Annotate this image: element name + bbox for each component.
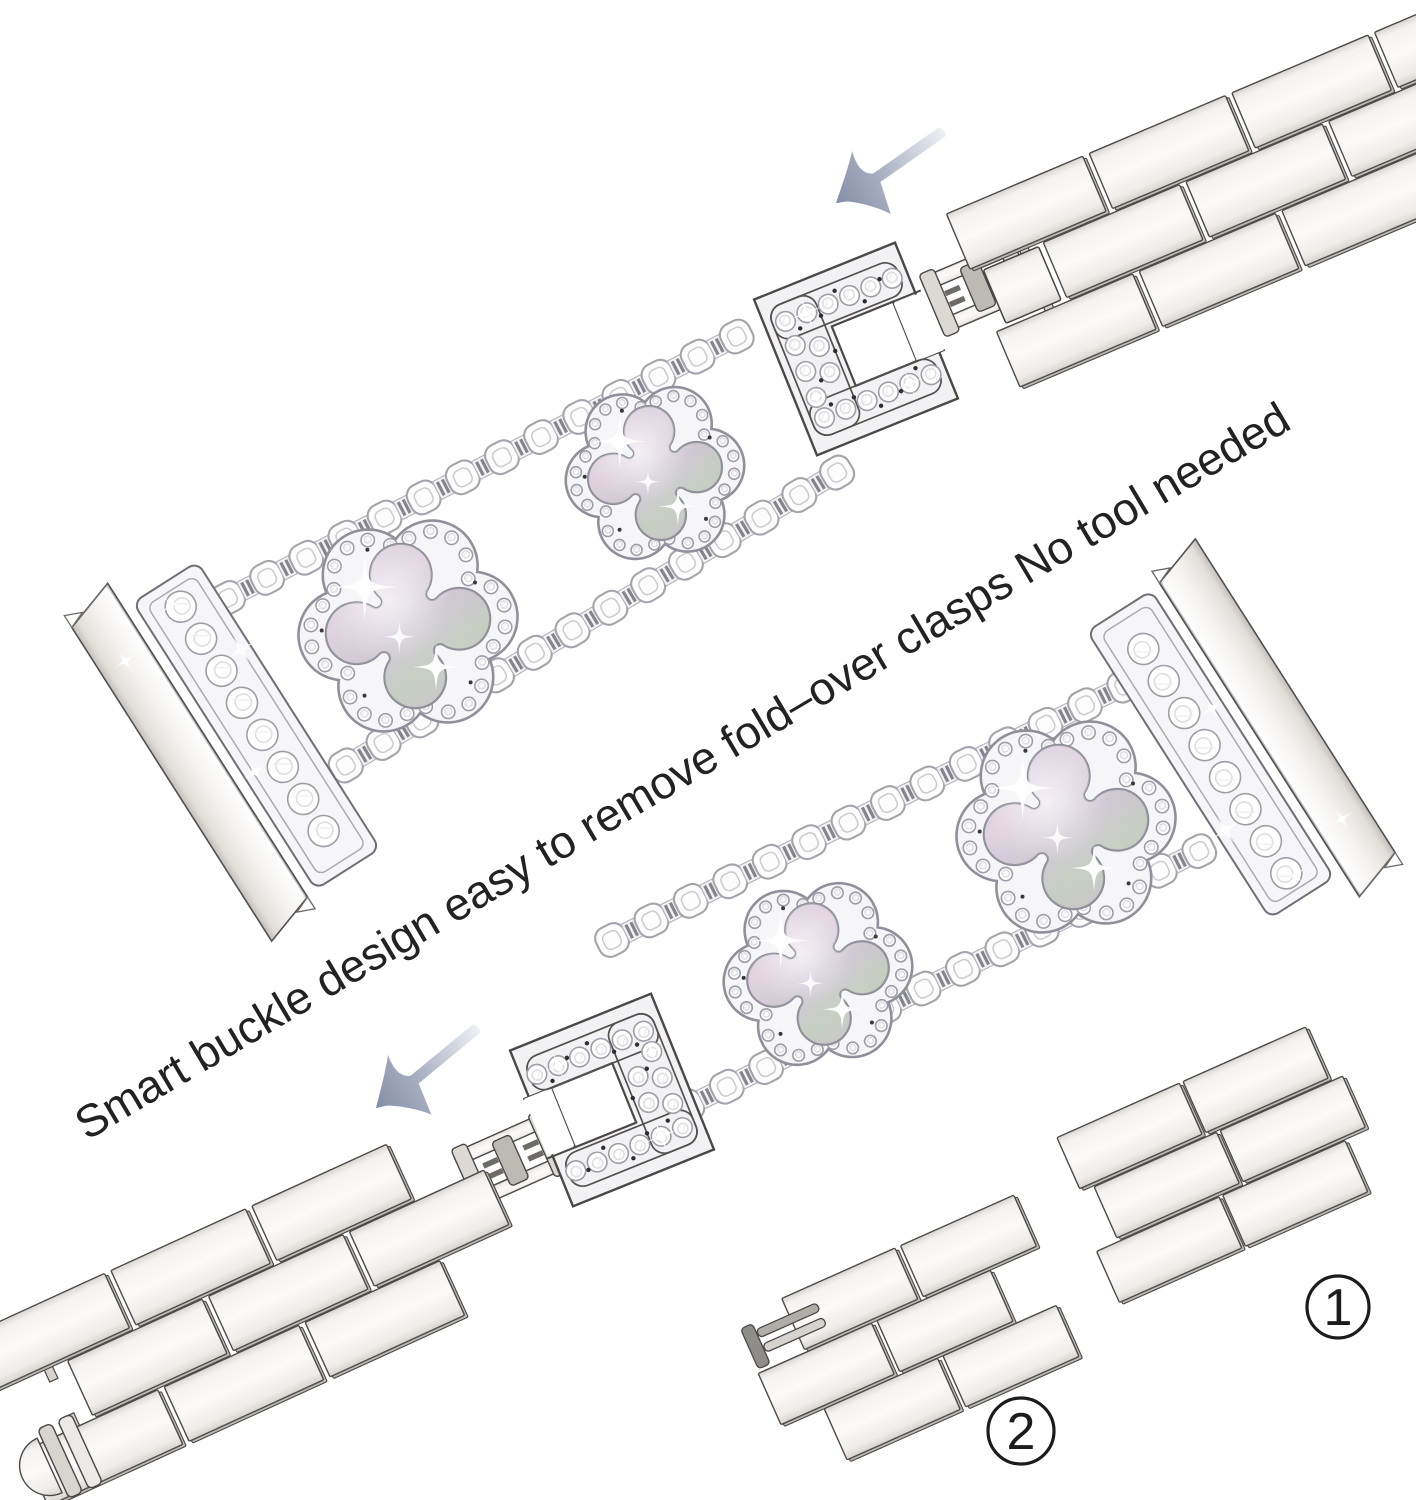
svg-text:2: 2 <box>1007 1403 1036 1461</box>
svg-text:1: 1 <box>1324 1279 1353 1337</box>
